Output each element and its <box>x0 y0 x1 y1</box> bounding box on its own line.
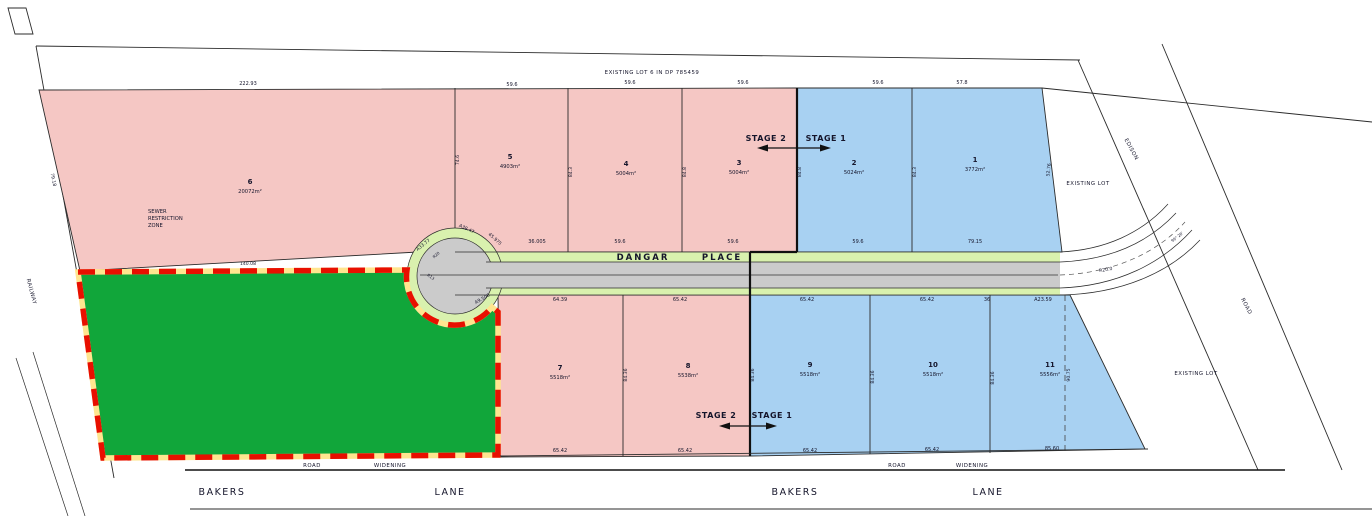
bakers-lane-label: LANE <box>434 487 465 498</box>
dim-label: 85.60 <box>1045 446 1059 452</box>
road-widening-label: WIDENING <box>374 463 406 469</box>
lot-9-number: 9 <box>808 361 813 369</box>
lot-10-area: 5518m² <box>923 372 943 378</box>
dim-label: 65.42 <box>920 297 934 303</box>
dim-label: 36.005 <box>528 239 546 245</box>
lot-11-number: 11 <box>1045 361 1055 369</box>
lot-6-number: 6 <box>248 178 253 186</box>
lot-3-area: 5004m² <box>729 170 749 176</box>
sewer-zone-label: SEWER <box>148 209 167 215</box>
lot-8-area: 5538m² <box>678 373 698 379</box>
dim-label: 64.39 <box>553 297 567 303</box>
dim-label: 84.8 <box>682 167 688 177</box>
dim-label: A23.59 <box>1034 297 1052 303</box>
stage2-label-south: STAGE 2 <box>696 411 737 420</box>
dim-label: 84.36 <box>870 370 876 383</box>
lot-9-area: 5518m² <box>800 372 820 378</box>
stage2-north-parcels <box>39 88 797 271</box>
existing-lot-ne-label: EXISTING LOT <box>1066 181 1109 187</box>
bakers-lane-label: LANE <box>972 487 1003 498</box>
existing-lot-reference: EXISTING LOT 6 IN DP 785459 <box>605 70 700 76</box>
dim-label: 59.6 <box>852 239 863 245</box>
dim-label: 84.36 <box>623 368 629 381</box>
dim-label: 84.3 <box>912 167 918 177</box>
dim-label: 59.6 <box>614 239 625 245</box>
lot-8-number: 8 <box>686 362 691 370</box>
dim-label: 65.42 <box>553 448 567 454</box>
sewer-zone-label: RESTRICTION <box>148 216 183 222</box>
bakers-lane-label: BAKERS <box>199 487 246 498</box>
subdivision-plan-drawing: RAILWAY EDISON ROAD DANGA <box>0 0 1372 516</box>
existing-lot-se-label: EXISTING LOT <box>1174 371 1217 377</box>
dim-label: 84.36 <box>990 371 996 384</box>
stage1-label-north: STAGE 1 <box>806 134 847 143</box>
dim-label: 59.6 <box>872 80 883 86</box>
stage1-label-south: STAGE 1 <box>752 411 793 420</box>
dim-label: 59.6 <box>737 80 748 86</box>
lot-4-number: 4 <box>624 160 629 168</box>
dim-label: 74.6 <box>455 155 461 165</box>
bakers-lane-label: BAKERS <box>772 487 819 498</box>
lot-7-number: 7 <box>558 364 563 372</box>
lot-2-number: 2 <box>852 159 857 167</box>
lot-1-number: 1 <box>973 156 978 164</box>
road-widening-label: ROAD <box>303 463 321 469</box>
lot-2-area: 5024m² <box>844 170 864 176</box>
subdivision-plan-page: RAILWAY EDISON ROAD DANGA <box>0 0 1372 516</box>
dim-label: 59.6 <box>624 80 635 86</box>
lot-3-number: 3 <box>737 159 742 167</box>
dim-label: 65.42 <box>800 297 814 303</box>
dim-label: 84.3 <box>568 167 574 177</box>
dim-label: 79.15 <box>968 239 982 245</box>
dim-label: 65.42 <box>803 448 817 454</box>
dim-label: 65.42 <box>925 447 939 453</box>
dim-label: 59.6 <box>727 239 738 245</box>
road-widening-label: ROAD <box>888 463 906 469</box>
stage2-label-north: STAGE 2 <box>746 134 787 143</box>
lot-11-area: 5556m² <box>1040 372 1060 378</box>
dim-label: 222.93 <box>239 81 257 87</box>
lot-6-area: 20072m² <box>238 189 262 195</box>
dim-label: 59.6 <box>506 82 517 88</box>
lot-5-number: 5 <box>508 153 513 161</box>
lot-4-area: 5004m² <box>616 171 636 177</box>
dim-label: 140.08 <box>240 261 256 267</box>
road-widening-label: WIDENING <box>956 463 988 469</box>
dim-label: 65.42 <box>678 448 692 454</box>
dim-label: 84.8 <box>797 167 803 177</box>
dim-label: 57.8 <box>956 80 967 86</box>
lot-7-area: 5518m² <box>550 375 570 381</box>
stage1-north-parcels <box>797 88 1062 252</box>
dim-label: 90.75 <box>1066 368 1072 381</box>
lot-5-area: 4903m² <box>500 164 520 170</box>
dim-label: 84.36 <box>750 368 756 381</box>
dim-label: 65.42 <box>673 297 687 303</box>
lot-10-number: 10 <box>928 361 938 369</box>
lot-1-area: 3772m² <box>965 167 985 173</box>
sewer-zone-label: ZONE <box>148 223 163 229</box>
dim-label: 36 <box>984 297 990 303</box>
place-label: PLACE <box>702 253 742 263</box>
dangar-label: DANGAR <box>617 253 670 263</box>
